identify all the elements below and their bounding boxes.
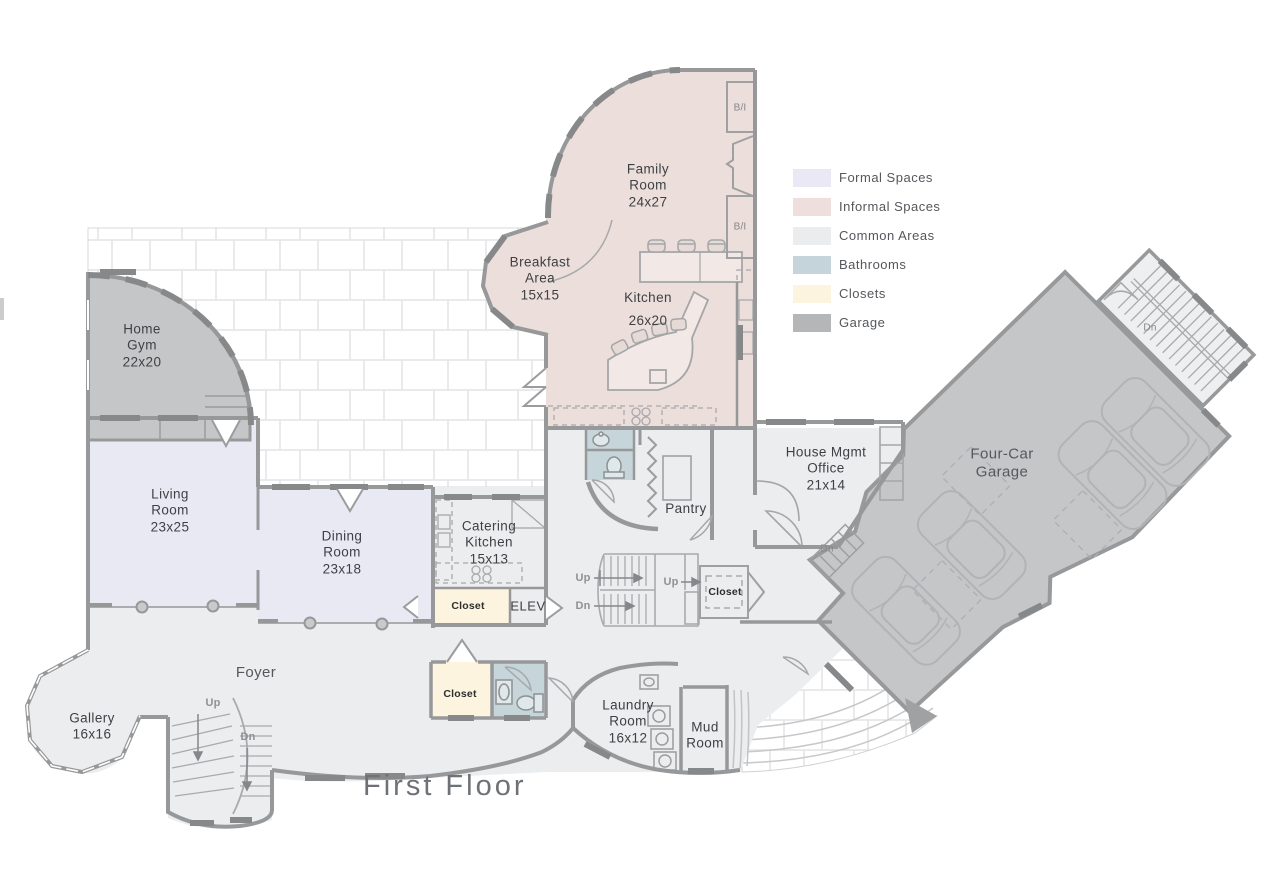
legend-item: Informal Spaces [793,192,940,221]
room-name: Foyer [236,664,276,681]
room-name: Family Room [627,161,669,192]
room-label-catering: Catering Kitchen 15x13 [452,518,526,567]
room-name: Home Gym [123,321,161,352]
legend-swatch-formal [793,169,831,187]
room-label-dining: Dining Room 23x18 [314,528,370,577]
legend-swatch-informal [793,198,831,216]
legend-label: Garage [839,315,885,330]
room-dims: 16x16 [59,727,125,743]
room-label-gallery: Gallery 16x16 [59,711,125,744]
room-label-pantry: Pantry [656,501,716,517]
built-in-label: B/I [734,222,747,233]
room-name: Gallery [69,711,115,726]
room-dims: 22x20 [114,354,170,370]
stair-dn-label: Dn [575,600,590,612]
legend-item: Garage [793,308,940,337]
legend-label: Informal Spaces [839,199,940,214]
room-dims: 16x12 [595,730,661,746]
bar-stools [648,240,725,252]
edge-fragment [0,298,4,320]
room-name: Dining Room [322,528,363,559]
legend: Formal Spaces Informal Spaces Common Are… [793,163,940,337]
room-name: Laundry Room [602,697,654,728]
room-name: Living Room [151,486,189,517]
legend-item: Formal Spaces [793,163,940,192]
stair-up-label: Up [205,697,220,709]
room-dims: 26x20 [608,314,688,330]
room-name: Kitchen [624,290,672,305]
closet-label: Closet [708,586,741,598]
room-label-family: Family Room 24x27 [613,161,683,210]
room-label-foyer: Foyer [221,664,291,682]
room-label-home-gym: Home Gym 22x20 [114,321,170,370]
room-label-mud-room: Mud Room [684,720,726,753]
room-name: House Mgmt Office [786,444,867,475]
room-dims: 23x18 [314,561,370,577]
room-dims: 23x25 [142,519,198,535]
room-label-kitchen: Kitchen 26x20 [608,290,688,330]
room-dims: 21x14 [774,477,878,493]
room-dims: 15x15 [500,287,580,303]
legend-swatch-garage [793,314,831,332]
page-title: First Floor [363,770,527,803]
closet-label: Closet [451,600,484,612]
floor-plan: Family Room 24x27 Breakfast Area 15x15 K… [0,0,1280,887]
legend-label: Bathrooms [839,257,906,272]
stair-dn-label: Dn [240,731,255,743]
legend-item: Bathrooms [793,250,940,279]
stair-up-label: Up [575,572,590,584]
legend-swatch-closets [793,285,831,303]
legend-item: Closets [793,279,940,308]
room-label-garage: Four-Car Garage [957,446,1047,483]
built-in-label: B/I [734,103,747,114]
room-name: Four-Car Garage [970,446,1033,481]
legend-label: Closets [839,286,886,301]
stair-dn-label: Dn [1143,323,1156,334]
room-label-living: Living Room 23x25 [142,486,198,535]
room-label-laundry: Laundry Room 16x12 [595,697,661,746]
room-dims: 24x27 [613,194,683,210]
elevator-label: ELEV [510,599,545,614]
room-name: Pantry [665,501,706,516]
legend-label: Common Areas [839,228,935,243]
legend-item: Common Areas [793,221,940,250]
legend-label: Formal Spaces [839,170,933,185]
room-name: Mud Room [686,720,724,751]
legend-swatch-common [793,227,831,245]
stair-dn-label: Dn [820,544,833,555]
room-name: Breakfast Area [510,254,571,285]
legend-swatch-bathrooms [793,256,831,274]
stair-up-label: Up [663,576,678,588]
room-name: Catering Kitchen [462,518,516,549]
room-dims: 15x13 [452,551,526,567]
closet-label: Closet [443,688,476,700]
floor-plan-drawing [0,0,1280,887]
room-label-office: House Mgmt Office 21x14 [774,444,878,493]
room-label-breakfast: Breakfast Area 15x15 [500,254,580,303]
